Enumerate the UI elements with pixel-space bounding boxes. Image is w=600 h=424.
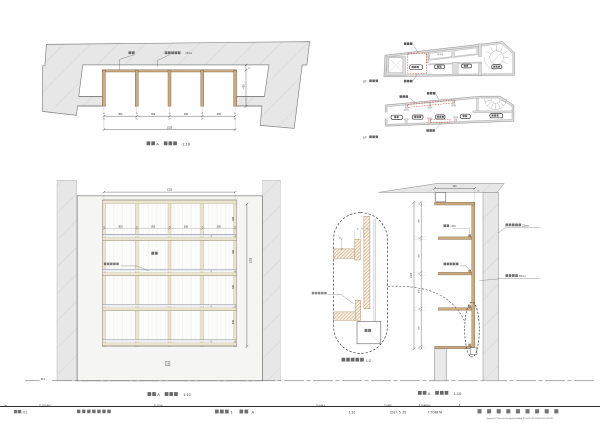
svg-text:25: 25 — [103, 227, 105, 229]
svg-text:1:10: 1:10 — [454, 391, 463, 396]
svg-text:25: 25 — [211, 270, 213, 272]
svg-text:45mm: 45mm — [519, 275, 526, 278]
svg-text:25: 25 — [103, 113, 105, 115]
svg-text:25: 25 — [419, 273, 421, 275]
svg-text:25: 25 — [211, 305, 213, 307]
svg-text:1325: 1325 — [410, 272, 413, 278]
svg-text:25: 25 — [136, 118, 138, 120]
svg-text:1325: 1325 — [167, 189, 173, 192]
svg-text:300: 300 — [184, 113, 189, 116]
svg-text:1F: 1F — [363, 135, 367, 139]
svg-text:25: 25 — [234, 118, 236, 120]
svg-text:300: 300 — [151, 226, 156, 229]
svg-text:T.TOMITA: T.TOMITA — [428, 410, 443, 414]
svg-text:25: 25 — [201, 227, 203, 229]
svg-text:25: 25 — [201, 118, 203, 120]
svg-text:25: 25 — [366, 228, 368, 230]
svg-text:25: 25 — [419, 237, 421, 239]
svg-text:300: 300 — [118, 226, 123, 229]
svg-text:-01: -01 — [22, 410, 27, 414]
svg-text:25: 25 — [419, 308, 421, 310]
svg-text:400: 400 — [242, 84, 245, 89]
svg-text:No.: No. — [5, 405, 9, 407]
svg-text:25: 25 — [235, 235, 237, 237]
svg-text:A: A — [428, 391, 431, 396]
svg-text:25: 25 — [235, 270, 237, 272]
svg-text:Nagoya-shi Chikusa-ku Hoshigao: Nagoya-shi Chikusa-ku Hoshigaoka-Buildin… — [487, 417, 554, 420]
svg-text:A: A — [156, 141, 159, 146]
svg-text:25: 25 — [136, 113, 138, 115]
svg-text:10: 10 — [356, 228, 358, 230]
svg-text:25: 25 — [248, 68, 250, 70]
svg-text:300: 300 — [232, 319, 235, 324]
svg-text:SCALE: SCALE — [319, 404, 326, 407]
svg-text:300: 300 — [151, 113, 156, 116]
svg-text:2F: 2F — [363, 79, 367, 83]
svg-text:2FL: 2FL — [41, 378, 46, 381]
svg-text:A: A — [252, 410, 255, 415]
svg-text:25: 25 — [201, 113, 203, 115]
svg-text:300: 300 — [232, 249, 235, 254]
svg-text:25: 25 — [235, 341, 237, 343]
svg-text:300: 300 — [217, 226, 222, 229]
svg-text:25: 25 — [169, 113, 171, 115]
svg-text:1:10: 1:10 — [182, 141, 191, 146]
svg-text:300: 300 — [184, 226, 189, 229]
svg-text:300: 300 — [217, 113, 222, 116]
svg-text:TITLE: TITLE — [157, 405, 163, 407]
svg-text:25: 25 — [477, 191, 479, 193]
svg-text:25: 25 — [234, 113, 236, 115]
svg-text:25: 25 — [168, 118, 170, 120]
svg-text:25: 25 — [234, 227, 236, 229]
svg-text:DATE: DATE — [387, 404, 393, 407]
svg-text:25: 25 — [419, 203, 421, 205]
svg-text:25: 25 — [211, 341, 213, 343]
svg-text:1:10: 1:10 — [183, 392, 192, 397]
svg-text:300: 300 — [118, 113, 123, 116]
svg-text:25: 25 — [169, 227, 171, 229]
svg-text:1325: 1325 — [249, 257, 252, 263]
svg-text:PROJECT: PROJECT — [42, 405, 52, 407]
svg-text:25: 25 — [103, 118, 105, 120]
svg-text:1:10: 1:10 — [349, 410, 356, 414]
svg-text:DRAWING: DRAWING — [421, 404, 431, 407]
svg-text:25mm: 25mm — [186, 52, 193, 55]
svg-text:300: 300 — [232, 216, 235, 221]
svg-text:1: 1 — [231, 410, 233, 415]
svg-text:2017. 5. 25: 2017. 5. 25 — [390, 410, 406, 414]
svg-text:25: 25 — [419, 347, 421, 349]
svg-text:25: 25 — [211, 235, 213, 237]
svg-text:25: 25 — [136, 227, 138, 229]
svg-text:400: 400 — [453, 185, 458, 188]
svg-text:=360: =360 — [451, 226, 457, 228]
svg-text:25mm: 25mm — [522, 224, 529, 227]
svg-text:300: 300 — [232, 284, 235, 289]
svg-text:25: 25 — [235, 305, 237, 307]
svg-text:A: A — [157, 392, 160, 397]
svg-text:1:2: 1:2 — [366, 358, 371, 363]
svg-text:1325: 1325 — [167, 126, 173, 129]
svg-text:45: 45 — [339, 237, 341, 239]
svg-text:10: 10 — [361, 228, 363, 230]
